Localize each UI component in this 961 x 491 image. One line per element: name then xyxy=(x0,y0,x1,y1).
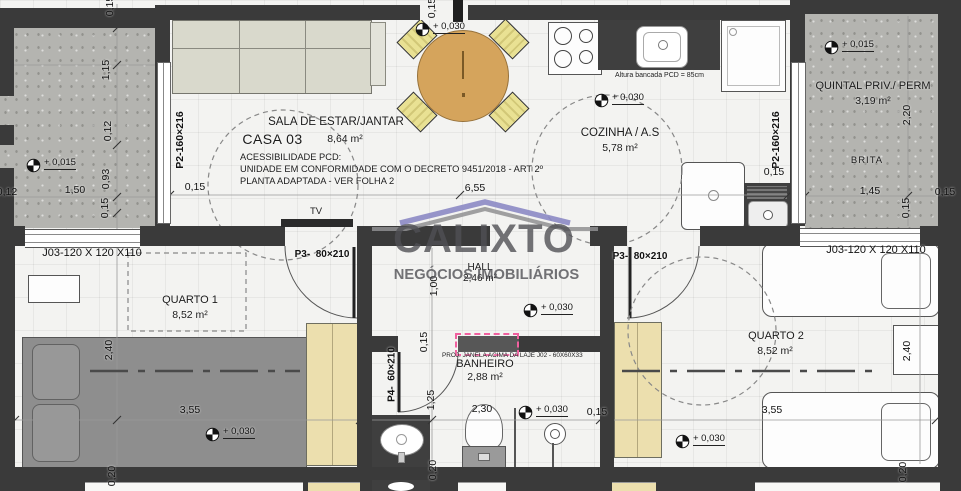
counter-height-note: Altura bancada PCD = 85cm xyxy=(615,72,704,79)
watermark-brand: CALIXTO xyxy=(390,219,578,259)
door-label-p2-left: P2-160×216 xyxy=(174,100,186,180)
room-area-sala: 8,64 m² xyxy=(305,133,385,145)
dim: 1,15 xyxy=(100,50,112,90)
dim: 6,55 xyxy=(455,182,495,194)
dim: 0,12 xyxy=(102,111,114,151)
dim: 0,15 xyxy=(99,188,111,228)
level-marker-quintal-left: + 0,015 xyxy=(26,158,76,173)
lower-unit-glimpse xyxy=(612,482,656,491)
door-label-p4: P4- 60×210 xyxy=(387,344,398,406)
wall-top-right xyxy=(795,0,938,14)
dim: 2,20 xyxy=(901,95,913,135)
lower-unit-glimpse xyxy=(458,482,506,491)
wall-left-4 xyxy=(0,246,15,491)
dim: 0,20 xyxy=(897,452,909,491)
lower-unit-sink xyxy=(388,482,414,491)
room-area-quintal: 3,19 m² xyxy=(835,95,911,107)
accessibility-note-3: PLANTA ADAPTADA - VER FOLHA 2 xyxy=(240,176,394,186)
level-icon xyxy=(205,427,220,442)
lower-unit-glimpse xyxy=(755,482,940,491)
level-icon xyxy=(523,303,538,318)
room-label-sala: SALA DE ESTAR/JANTAR xyxy=(256,116,416,128)
level-icon xyxy=(675,434,690,449)
wall-top-left xyxy=(0,8,157,28)
level-marker-banheiro: + 0,030 xyxy=(518,405,568,420)
lower-unit-glimpse xyxy=(308,482,360,491)
lower-unit-glimpse xyxy=(372,480,430,491)
room-area-quarto2: 8,52 m² xyxy=(740,345,810,357)
window-label-j03-left: J03-120 X 120 X110 xyxy=(26,247,158,259)
wall-mid-b xyxy=(140,226,285,246)
dim: 2,30 xyxy=(462,403,502,415)
room-area-quarto1: 8,52 m² xyxy=(155,309,225,321)
entry-door-leaf xyxy=(453,0,463,22)
dim: 2,40 xyxy=(103,330,115,370)
level-marker-quarto2: + 0,030 xyxy=(675,434,725,449)
dim: 0,20 xyxy=(106,456,118,491)
room-label-banheiro: BANHEIRO xyxy=(445,358,525,370)
room-label-quarto2: QUARTO 2 xyxy=(733,330,819,342)
level-icon xyxy=(26,158,41,173)
dim: 3,55 xyxy=(752,404,792,416)
dim: 0,15 xyxy=(180,181,210,193)
dim: 0,20 xyxy=(427,450,439,490)
tv xyxy=(281,219,353,227)
room-label-cozinha: COZINHA / A.S xyxy=(560,127,680,139)
dim: 0,15 xyxy=(900,188,912,228)
wall-mid-f xyxy=(920,226,938,246)
dim: 0,15 xyxy=(418,322,430,362)
level-marker-sala: + 0,030 xyxy=(415,22,465,37)
dim: 0,15 xyxy=(756,166,792,178)
watermark-tagline: NEGÓCIOS IMOBILIÁRIOS xyxy=(394,266,570,283)
level-marker-quintal-right: + 0,015 xyxy=(824,40,874,55)
floor-finish-brita: BRITA xyxy=(838,155,896,166)
level-marker-cozinha: + 0,030 xyxy=(594,93,644,108)
level-marker-quarto1: + 0,030 xyxy=(205,427,255,442)
dim: 0,15 xyxy=(930,186,960,198)
dim: 0,15 xyxy=(104,0,116,26)
level-icon xyxy=(824,40,839,55)
accessibility-note-1: ACESSIBILIDADE PCD: xyxy=(240,152,341,162)
dim: 3,55 xyxy=(170,404,210,416)
wall-mid-e xyxy=(700,226,800,246)
level-marker-hall: + 0,030 xyxy=(523,303,573,318)
dim: 1,25 xyxy=(425,380,437,420)
floor-plan: TV CASA 03 SALA DE ESTAR/JANTAR 8,64 m² … xyxy=(0,0,961,491)
wall-left-3 xyxy=(0,168,14,228)
dim: 1,45 xyxy=(850,185,890,197)
door-label-p3-right: P3- 80×210 xyxy=(604,251,676,262)
dim: 0,12 xyxy=(0,186,22,198)
dim: 0,15 xyxy=(426,0,438,28)
room-label-quarto1: QUARTO 1 xyxy=(150,294,230,306)
door-label-p3-left: P3- 80×210 xyxy=(286,249,358,260)
level-icon xyxy=(594,93,609,108)
dim: 2,40 xyxy=(901,331,913,371)
window-projection-note: PROJ. JANELA ACIMA DA LAJE J02 - 60X60X3… xyxy=(442,352,583,359)
wall-quarto1-bath xyxy=(357,246,372,491)
room-area-banheiro: 2,88 m² xyxy=(450,371,520,383)
dim: 1,50 xyxy=(55,184,95,196)
sliding-door-p2-left xyxy=(157,62,171,224)
sliding-door-p2-right xyxy=(791,62,806,224)
room-label-quintal: QUINTAL PRIV./ PERM xyxy=(810,80,936,92)
dim: 0,15 xyxy=(582,406,612,418)
wall-left-2 xyxy=(0,125,14,145)
wall-bath-quarto2 xyxy=(600,246,614,491)
window-j03-left xyxy=(25,229,140,248)
room-area-cozinha: 5,78 m² xyxy=(580,142,660,154)
accessibility-note-2: UNIDADE EM CONFORMIDADE COM O DECRETO 94… xyxy=(240,164,543,174)
wall-mid-a xyxy=(0,226,25,246)
window-label-j03-right: J03-120 X 120 X110 xyxy=(810,244,942,256)
wall-left-1 xyxy=(0,8,14,96)
level-icon xyxy=(518,405,533,420)
tv-label: TV xyxy=(310,206,322,217)
wall-top-main xyxy=(155,5,795,20)
